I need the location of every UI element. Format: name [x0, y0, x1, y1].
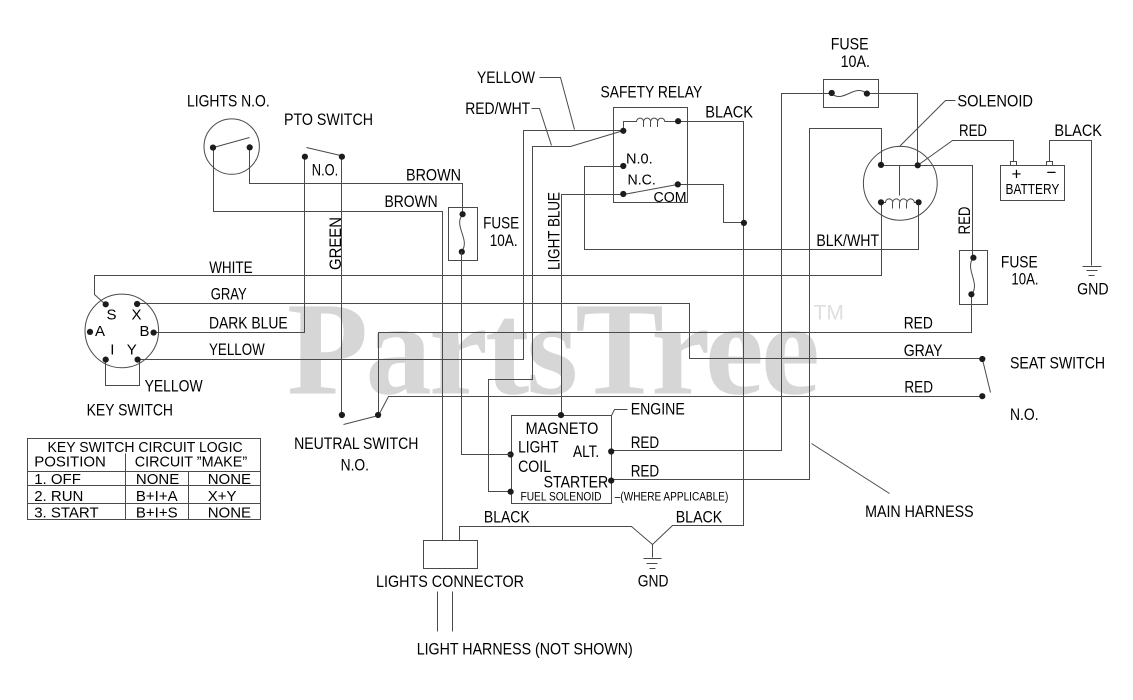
svg-text:3. START: 3. START [34, 505, 98, 522]
svg-text:LIGHT HARNESS (NOT SHOWN): LIGHT HARNESS (NOT SHOWN) [417, 640, 633, 659]
svg-text:BLACK: BLACK [676, 508, 723, 527]
svg-text:ENGINE: ENGINE [631, 399, 685, 418]
svg-text:BATTERY: BATTERY [1006, 181, 1060, 198]
svg-text:GND: GND [1077, 279, 1109, 298]
svg-text:10A.: 10A. [1011, 269, 1038, 288]
svg-text:N.O.: N.O. [341, 455, 369, 474]
svg-text:BLK/WHT: BLK/WHT [816, 231, 879, 250]
svg-text:RED: RED [959, 121, 987, 140]
svg-text:MAGNETO: MAGNETO [526, 419, 599, 438]
svg-text:SEAT SWITCH: SEAT SWITCH [1010, 354, 1105, 373]
svg-text:N.O.: N.O. [1010, 405, 1039, 424]
svg-text:GRAY: GRAY [211, 284, 247, 303]
svg-text:RED: RED [631, 462, 660, 481]
svg-text:RED: RED [904, 313, 933, 332]
svg-text:GRAY: GRAY [904, 341, 943, 360]
svg-text:KEY SWITCH: KEY SWITCH [87, 401, 173, 420]
svg-text:I: I [110, 342, 114, 359]
svg-text:FUSE: FUSE [483, 214, 519, 233]
svg-text:SAFETY RELAY: SAFETY RELAY [601, 82, 703, 101]
svg-text:COM: COM [654, 189, 687, 206]
svg-text:NONE: NONE [208, 505, 251, 522]
svg-text:FUSE: FUSE [831, 35, 869, 54]
svg-text:RED: RED [904, 378, 933, 397]
svg-text:YELLOW: YELLOW [145, 376, 203, 395]
svg-text:YELLOW: YELLOW [209, 340, 265, 359]
svg-text:LIGHTS CONNECTOR: LIGHTS CONNECTOR [376, 572, 524, 591]
svg-text:X+Y: X+Y [208, 488, 237, 505]
svg-text:−: − [1047, 163, 1057, 182]
svg-text:B+I+S: B+I+S [136, 505, 178, 522]
svg-text:YELLOW: YELLOW [477, 68, 535, 87]
svg-text:LIGHT: LIGHT [518, 437, 559, 456]
svg-text:LIGHTS N.O.: LIGHTS N.O. [187, 91, 270, 110]
svg-text:MAIN HARNESS: MAIN HARNESS [865, 502, 974, 521]
svg-text:BROWN: BROWN [385, 192, 438, 211]
svg-text:Y: Y [127, 342, 137, 359]
svg-text:TM: TM [814, 302, 844, 325]
svg-text:CIRCUIT ”MAKE”: CIRCUIT ”MAKE” [135, 454, 248, 471]
svg-text:BLACK: BLACK [1054, 121, 1102, 140]
svg-text:N.C.: N.C. [628, 171, 656, 188]
svg-text:–(WHERE APPLICABLE): –(WHERE APPLICABLE) [615, 492, 729, 504]
svg-text:ALT.: ALT. [573, 442, 599, 461]
svg-text:POSITION: POSITION [34, 454, 106, 471]
svg-text:B+I+A: B+I+A [136, 488, 178, 505]
svg-text:GREEN: GREEN [326, 217, 345, 270]
svg-text:B: B [140, 323, 150, 340]
svg-text:N.0.: N.0. [626, 151, 653, 168]
svg-text:A: A [95, 323, 105, 340]
svg-text:SOLENOID: SOLENOID [957, 92, 1033, 111]
svg-text:FUEL SOLENOID: FUEL SOLENOID [521, 492, 602, 504]
svg-text:STARTER: STARTER [544, 472, 609, 491]
svg-text:BLACK: BLACK [484, 508, 530, 527]
svg-text:S: S [107, 307, 117, 324]
svg-text:RED: RED [631, 433, 660, 452]
svg-text:DARK BLUE: DARK BLUE [209, 314, 288, 333]
svg-text:WHITE: WHITE [209, 258, 253, 277]
svg-text:10A.: 10A. [841, 52, 870, 71]
svg-text:10A.: 10A. [490, 231, 518, 250]
svg-text:NONE: NONE [208, 471, 251, 488]
svg-text:GND: GND [638, 571, 669, 590]
svg-text:1. OFF: 1. OFF [34, 471, 81, 488]
svg-text:X: X [132, 307, 142, 324]
svg-text:LIGHT BLUE: LIGHT BLUE [545, 192, 564, 270]
svg-text:BROWN: BROWN [406, 165, 461, 184]
svg-text:NEUTRAL SWITCH: NEUTRAL SWITCH [294, 434, 418, 453]
svg-text:NONE: NONE [136, 471, 179, 488]
svg-text:RED/WHT: RED/WHT [465, 99, 530, 118]
svg-text:2. RUN: 2. RUN [34, 488, 83, 505]
svg-text:PartsTree: PartsTree [287, 275, 820, 423]
svg-text:PTO SWITCH: PTO SWITCH [284, 110, 373, 129]
svg-text:BLACK: BLACK [705, 102, 753, 121]
svg-text:RED: RED [955, 207, 974, 235]
svg-text:N.O.: N.O. [312, 161, 338, 180]
